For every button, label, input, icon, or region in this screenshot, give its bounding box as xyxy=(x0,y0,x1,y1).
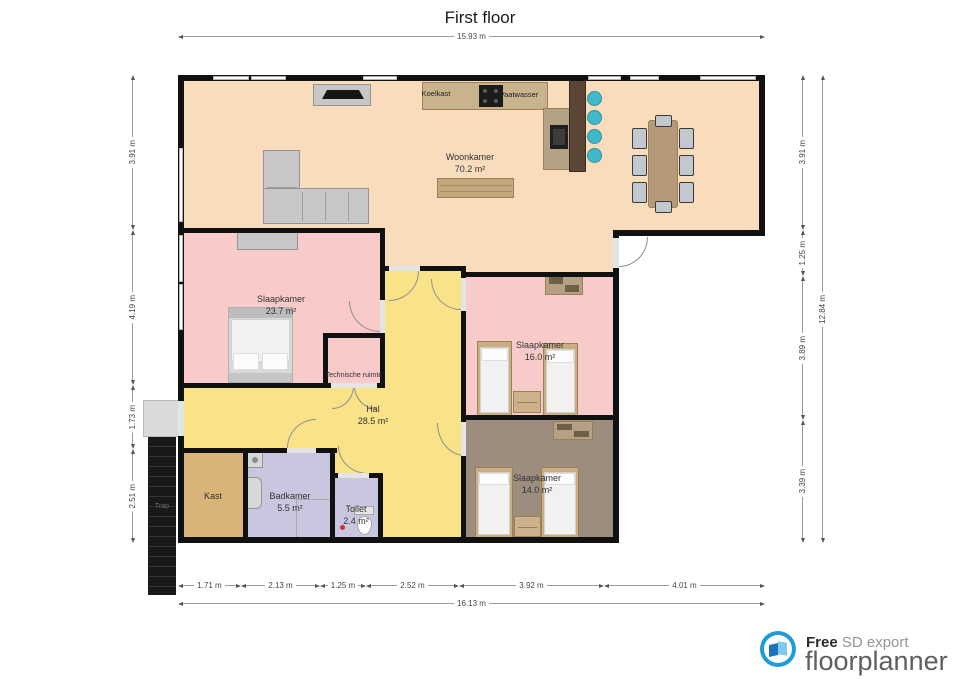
door-frame xyxy=(287,448,316,453)
dim-left-seg-3: 1.73 m xyxy=(128,385,137,449)
bar-stool xyxy=(587,91,602,106)
floorplan-export: First floor 15.93 m 1.71 m 2.13 m 1.25 m… xyxy=(0,0,960,679)
room-label-trap: Trap xyxy=(141,503,183,510)
dim-label: 3.39 m xyxy=(798,466,807,496)
dim-right-seg-4: 3.39 m xyxy=(798,420,807,543)
room-area: 14.0 m² xyxy=(487,485,587,497)
dim-label: 16.13 m xyxy=(454,599,489,608)
pillow xyxy=(233,353,259,370)
dim-right-seg-1: 3.91 m xyxy=(798,75,807,230)
tv-stand xyxy=(313,84,371,106)
window xyxy=(588,76,621,80)
door-opening-to-stairs xyxy=(178,401,184,436)
double-bed xyxy=(228,307,293,383)
stair-landing xyxy=(143,400,181,437)
tv xyxy=(322,90,364,99)
room-name: Technische ruimte xyxy=(304,371,404,380)
page-title: First floor xyxy=(0,8,960,28)
dresser xyxy=(545,274,583,295)
floorplanner-footer: Free SD export floorplanner xyxy=(760,628,950,674)
room-label-toilet: Toilet 2.4 m² xyxy=(316,504,396,527)
window xyxy=(251,76,286,80)
door-frame xyxy=(338,473,369,478)
window xyxy=(363,76,397,80)
dresser xyxy=(237,230,298,250)
wall xyxy=(178,228,385,233)
dim-right-seg-2: 1.25 m xyxy=(798,230,807,276)
door-frame xyxy=(461,422,466,456)
door-opening-exterior xyxy=(613,238,619,268)
room-label-slaapkamer-3: Slaapkamer 14.0 m² xyxy=(487,473,587,496)
chair xyxy=(679,128,694,149)
dim-label: 1.25 m xyxy=(328,581,358,590)
room-name: Slaapkamer xyxy=(487,473,587,485)
window xyxy=(179,284,183,330)
brand-name: floorplanner xyxy=(805,646,948,677)
dim-label: 3.92 m xyxy=(516,581,546,590)
dim-right-seg-3: 3.89 m xyxy=(798,276,807,420)
dim-bottom-total: 16.13 m xyxy=(178,599,765,608)
dim-label: 2.52 m xyxy=(397,581,427,590)
kitchen-sink xyxy=(550,125,568,149)
door-frame xyxy=(380,300,385,333)
chair xyxy=(632,155,647,176)
shower-unit xyxy=(247,452,263,468)
wall xyxy=(461,415,618,420)
dim-label: 4.19 m xyxy=(128,292,137,322)
window xyxy=(630,76,659,80)
room-name: Toilet xyxy=(316,504,396,516)
dim-top-total: 15.93 m xyxy=(178,32,765,41)
wall xyxy=(759,75,765,236)
wall xyxy=(613,230,765,236)
dresser xyxy=(553,421,593,440)
dim-label: 15.93 m xyxy=(454,32,489,41)
room-name: Woonkamer xyxy=(420,152,520,164)
wall xyxy=(323,333,385,338)
chair xyxy=(655,115,672,127)
window xyxy=(179,148,183,222)
dim-bottom-seg-3: 1.25 m xyxy=(320,581,366,590)
room-label-woonkamer: Woonkamer 70.2 m² xyxy=(420,152,520,175)
floorplanner-logo-icon xyxy=(760,631,796,667)
dim-bottom-seg-1: 1.71 m xyxy=(178,581,241,590)
bar-stool xyxy=(587,148,602,163)
dim-left-seg-1: 3.91 m xyxy=(128,75,137,230)
room-area: 2.4 m² xyxy=(316,516,396,528)
dim-bottom-seg-6: 4.01 m xyxy=(604,581,765,590)
dim-label: 12.84 m xyxy=(818,292,827,327)
bar-stool xyxy=(587,110,602,125)
label-koelkast: Koelkast xyxy=(406,89,466,98)
room-label-slaapkamer-1: Slaapkamer 23.7 m² xyxy=(231,294,331,317)
nightstand xyxy=(513,391,541,413)
dim-left-seg-4: 2.51 m xyxy=(128,449,137,543)
dim-right-total: 12.84 m xyxy=(818,75,827,543)
room-area: 28.5 m² xyxy=(323,416,423,428)
footboard xyxy=(229,373,292,382)
sofa xyxy=(263,188,369,224)
pillow xyxy=(262,353,288,370)
dim-label: 1.25 m xyxy=(798,238,807,268)
window xyxy=(213,76,249,80)
door-frame xyxy=(389,266,420,271)
dim-label: 1.71 m xyxy=(194,581,224,590)
room-label-technische-ruimte: Technische ruimte xyxy=(304,371,404,380)
dim-label: 2.51 m xyxy=(128,481,137,511)
dim-bottom-seg-4: 2.52 m xyxy=(366,581,459,590)
dim-bottom-seg-2: 2.13 m xyxy=(241,581,320,590)
door-arc-exterior xyxy=(619,237,648,267)
dim-label: 3.91 m xyxy=(128,137,137,167)
dim-label: 3.91 m xyxy=(798,137,807,167)
door-frame xyxy=(331,383,377,388)
chair xyxy=(632,128,647,149)
bar-stool xyxy=(587,129,602,144)
dim-label: 3.89 m xyxy=(798,333,807,363)
chair xyxy=(679,155,694,176)
stairs xyxy=(148,437,176,595)
room-area: 16.0 m² xyxy=(490,352,590,364)
window xyxy=(700,76,756,80)
room-label-hal: Hal 28.5 m² xyxy=(323,404,423,427)
chair xyxy=(632,182,647,203)
dim-label: 4.01 m xyxy=(669,581,699,590)
dim-label: 2.13 m xyxy=(265,581,295,590)
sideboard xyxy=(437,178,514,198)
label-vaatwasser: Vaatwasser xyxy=(489,90,549,99)
window xyxy=(179,235,183,282)
chair xyxy=(679,182,694,203)
room-name: Badkamer xyxy=(240,491,340,503)
bar-counter xyxy=(569,80,586,172)
room-label-slaapkamer-2: Slaapkamer 16.0 m² xyxy=(490,340,590,363)
dim-left-seg-2: 4.19 m xyxy=(128,230,137,385)
chair xyxy=(655,201,672,213)
room-name: Slaapkamer xyxy=(231,294,331,306)
dim-label: 1.73 m xyxy=(128,402,137,432)
wall xyxy=(461,272,618,277)
room-name: Slaapkamer xyxy=(490,340,590,352)
room-name: Hal xyxy=(323,404,423,416)
room-area: 23.7 m² xyxy=(231,306,331,318)
nightstand xyxy=(514,516,541,537)
door-frame xyxy=(461,278,466,311)
room-area: 70.2 m² xyxy=(420,164,520,176)
dining-table xyxy=(648,120,678,208)
dim-bottom-seg-5: 3.92 m xyxy=(459,581,604,590)
